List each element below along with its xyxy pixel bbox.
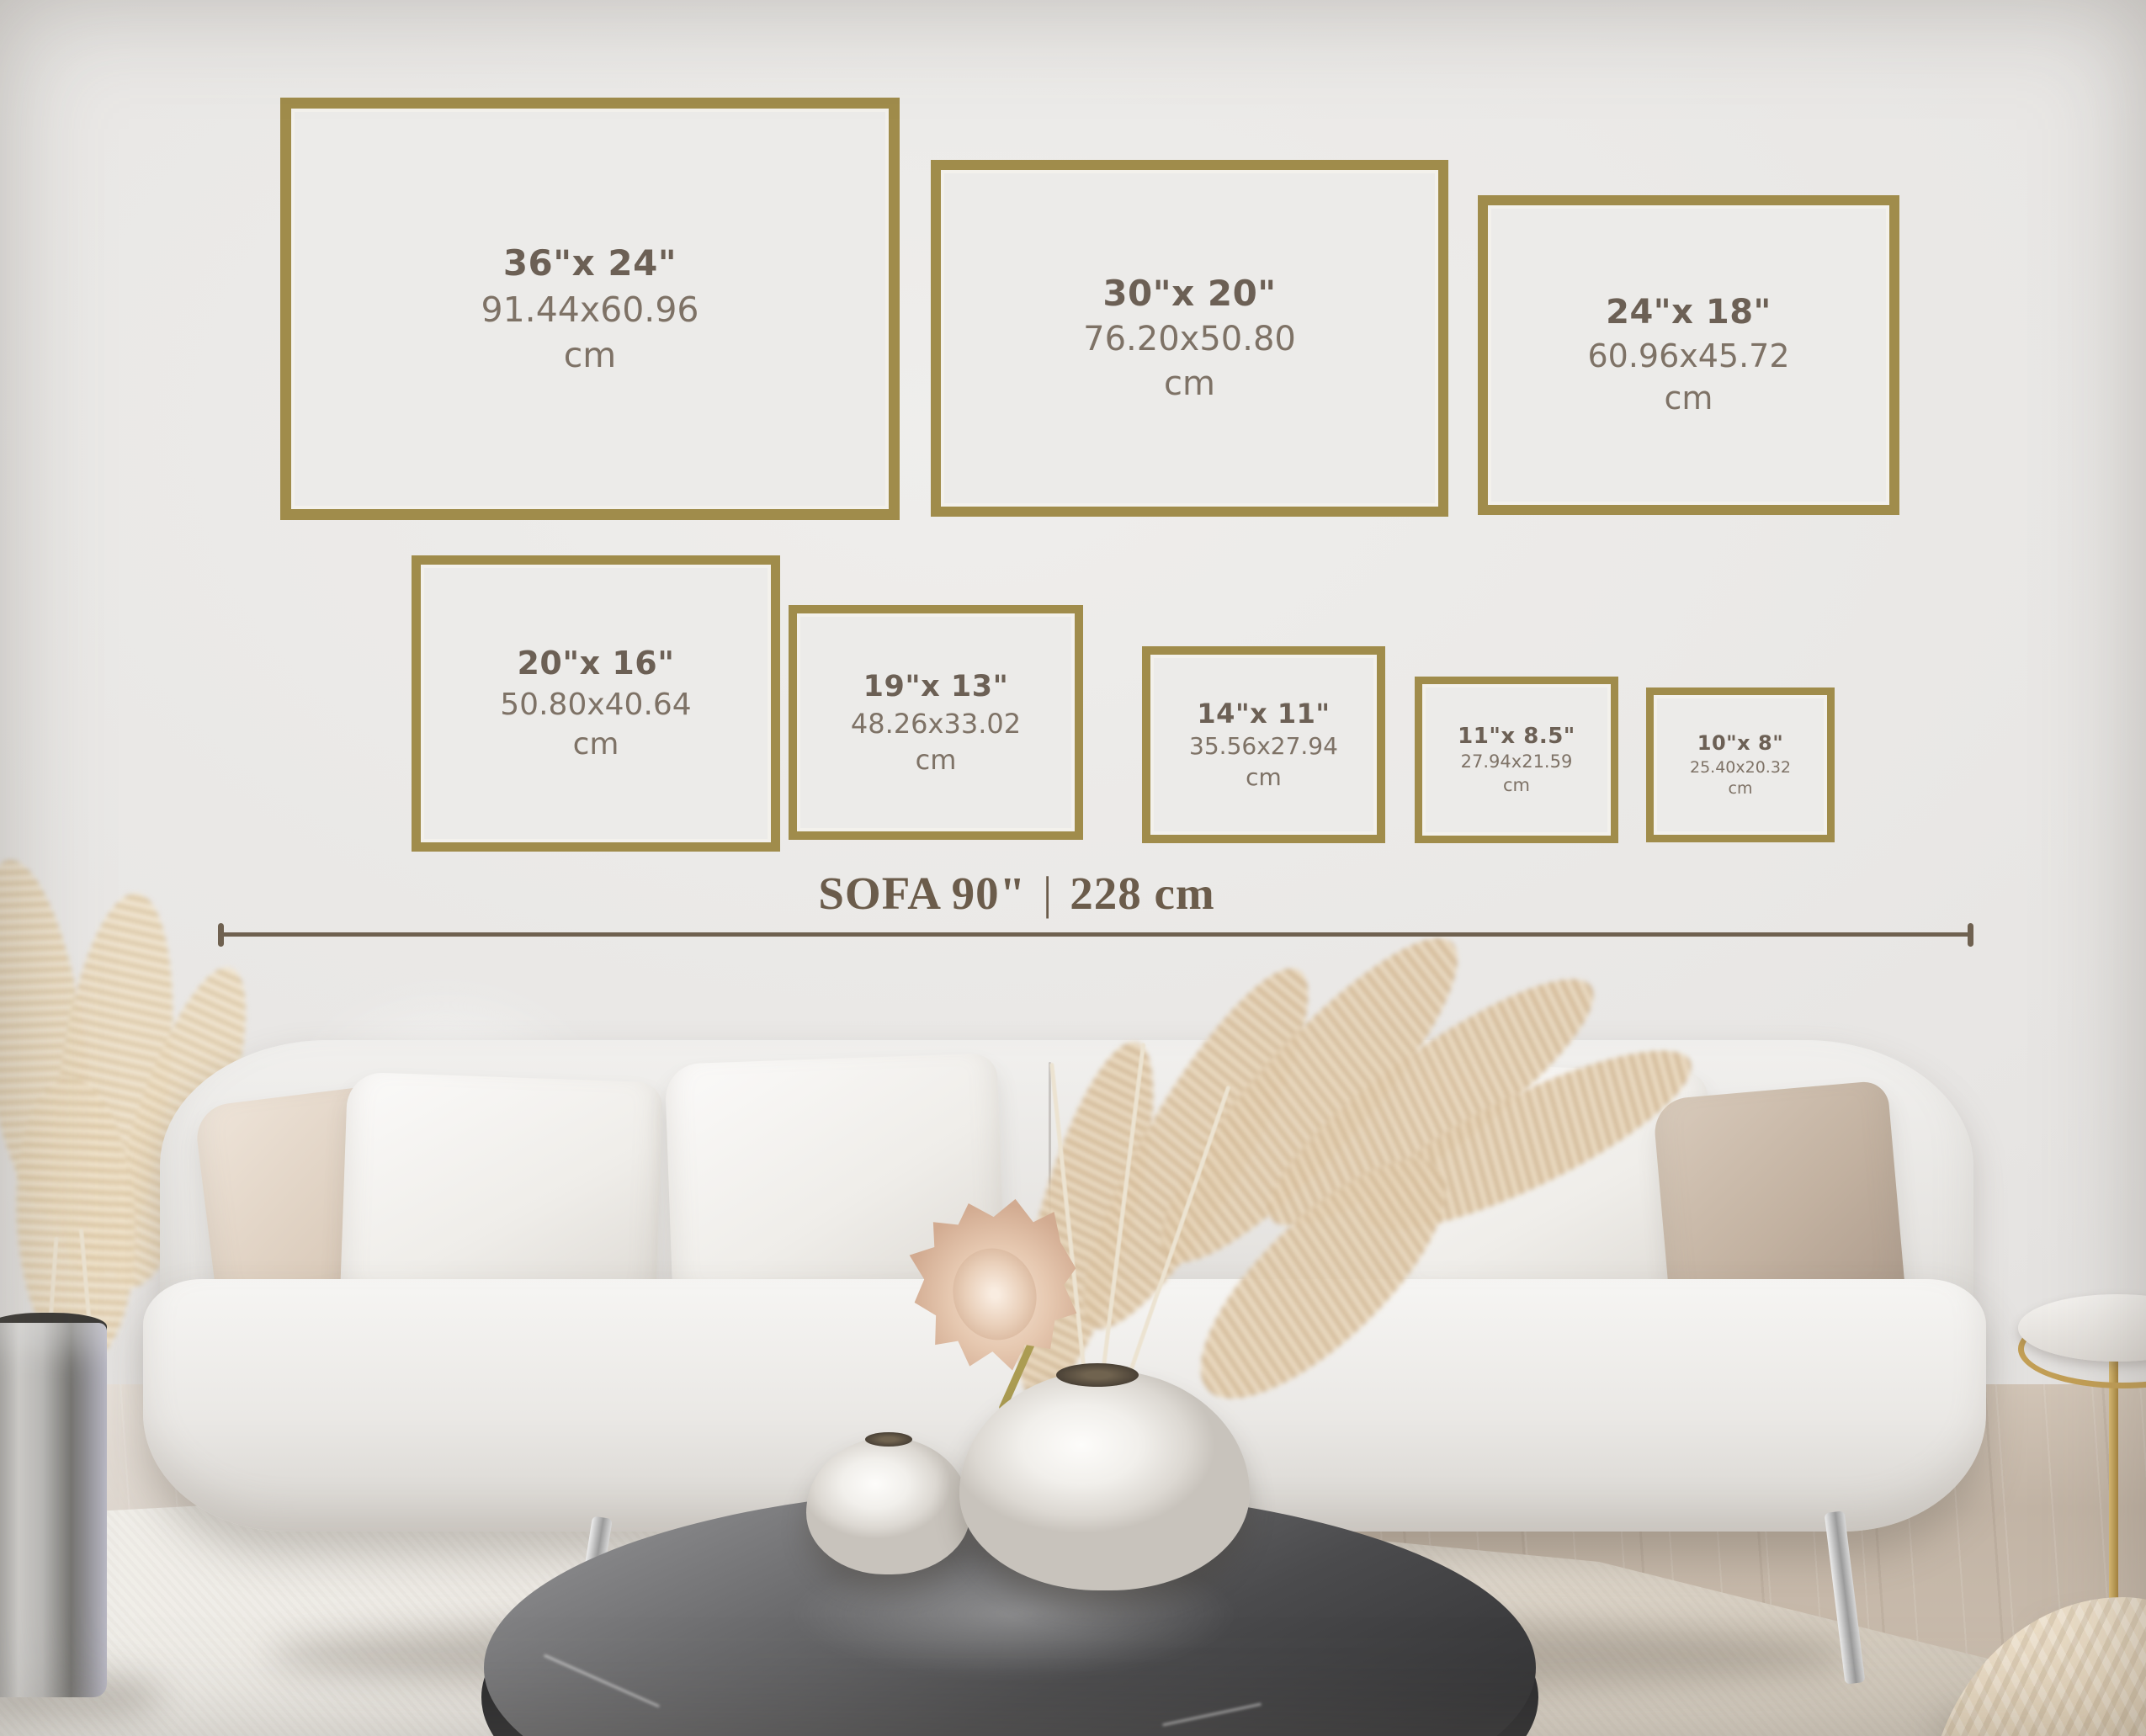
size-frame-19x13: 19"x 13" 48.26x33.02 cm: [789, 605, 1083, 840]
frame-size-unit: cm: [1503, 774, 1530, 798]
frame-size-unit: cm: [573, 725, 619, 765]
frame-size-cm: 27.94x21.59: [1461, 751, 1573, 774]
sofa-measurement-label: SOFA 90"|228 cm: [818, 867, 1214, 920]
sofa-measurement-cm: 228 cm: [1070, 868, 1214, 919]
frame-size-unit: cm: [1246, 762, 1282, 794]
measurement-tick-right: [1968, 923, 1973, 947]
size-frame-10x8: 10"x 8" 25.40x20.32 cm: [1646, 687, 1835, 842]
size-frame-24x18: 24"x 18" 60.96x45.72 cm: [1478, 195, 1899, 515]
frame-size-cm: 35.56x27.94: [1189, 731, 1338, 762]
frame-size-title: 24"x 18": [1606, 290, 1772, 335]
frame-size-title: 19"x 13": [863, 667, 1009, 706]
frame-size-cm: 25.40x20.32: [1690, 757, 1791, 778]
side-table-leg: [2109, 1360, 2118, 1638]
frame-size-unit: cm: [1665, 377, 1713, 419]
size-guide-scene: 36"x 24" 91.44x60.96 cm 30"x 20" 76.20x5…: [0, 0, 2146, 1736]
frame-size-cm: 76.20x50.80: [1083, 317, 1296, 362]
measurement-tick-left: [218, 923, 224, 947]
frame-size-title: 14"x 11": [1197, 696, 1330, 731]
frame-size-title: 11"x 8.5": [1458, 722, 1575, 751]
measurement-line: [220, 932, 1971, 937]
size-frame-11x8-5: 11"x 8.5" 27.94x21.59 cm: [1415, 677, 1618, 843]
frame-size-cm: 91.44x60.96: [481, 287, 699, 332]
frame-size-unit: cm: [1164, 362, 1215, 406]
measurement-separator: |: [1026, 868, 1070, 919]
frame-size-title: 30"x 20": [1102, 270, 1276, 316]
frame-size-unit: cm: [1729, 778, 1753, 799]
frame-size-title: 20"x 16": [517, 642, 674, 684]
frame-size-title: 36"x 24": [503, 240, 677, 286]
frame-size-unit: cm: [564, 332, 616, 378]
size-frame-20x16: 20"x 16" 50.80x40.64 cm: [412, 555, 780, 852]
size-frame-30x20: 30"x 20" 76.20x50.80 cm: [931, 160, 1448, 517]
woven-pouf: [1926, 1597, 2146, 1736]
frame-size-cm: 48.26x33.02: [851, 706, 1021, 741]
small-vase-opening: [865, 1432, 912, 1447]
frame-size-cm: 50.80x40.64: [500, 685, 691, 725]
frame-size-title: 10"x 8": [1697, 730, 1783, 757]
large-vase-opening: [1056, 1363, 1139, 1387]
glass-planter: [0, 1323, 107, 1697]
pouf-texture: [1926, 1597, 2146, 1736]
sofa-measurement-inches: SOFA 90": [818, 868, 1026, 919]
frame-size-cm: 60.96x45.72: [1587, 335, 1789, 377]
size-frame-36x24: 36"x 24" 91.44x60.96 cm: [280, 98, 900, 520]
frame-size-unit: cm: [916, 742, 957, 778]
size-frame-14x11: 14"x 11" 35.56x27.94 cm: [1142, 646, 1385, 843]
